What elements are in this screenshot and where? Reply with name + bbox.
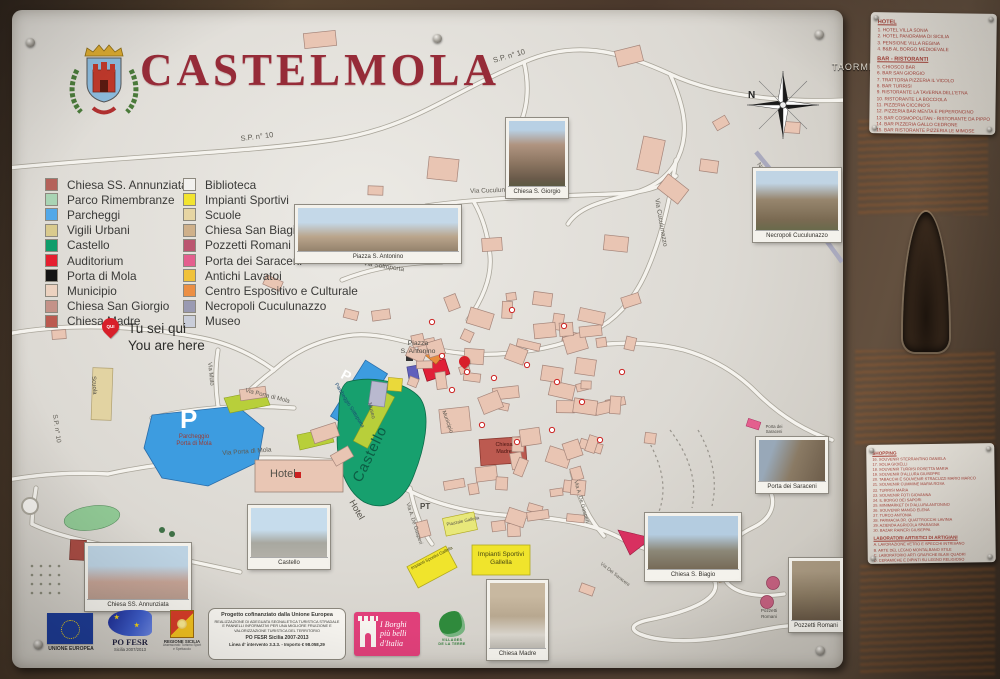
screw	[816, 646, 825, 655]
borghi-piu-belli-logo: I Borghi più belli d'Italia	[354, 612, 420, 656]
legend-item: Chiesa San Giorgio	[45, 299, 188, 314]
photo-chiesa-s-giorgio: Chiesa S. Giorgio	[506, 118, 568, 198]
legend-swatch	[183, 193, 196, 206]
legend-item-label: Parco Rimembranze	[67, 193, 175, 207]
photo-castello: Castello	[248, 505, 330, 569]
eu-label: UNIONE EUROPEA	[40, 646, 102, 652]
legend-item: Parcheggi	[45, 207, 188, 222]
area-parco	[63, 502, 122, 534]
laboratori-list: A. LAVORAZIONE VETRO E SPECCHI INTRISANO…	[874, 541, 992, 564]
castelmola-sign-photo: { "sign": { "title": "CASTELMOLA", "fram…	[0, 0, 1000, 679]
legend-item: Auditorium	[45, 253, 188, 268]
leaf-icon	[439, 611, 465, 637]
photo-caption: Chiesa SS. Annunziata	[87, 599, 189, 609]
photo-caption: Necropoli Cuculunazzo	[755, 230, 839, 240]
villages-text: VILLAGES DE LA TERRE	[432, 638, 472, 647]
po-fesr-logo: ★★ PO FESR Sicilia 2007/2013	[102, 610, 158, 658]
sign-title: CASTELMOLA	[140, 44, 500, 96]
legend-item-label: Porta dei Saraceni	[205, 254, 302, 268]
photo-chiesa-ss-annunziata: Chiesa SS. Annunziata	[85, 543, 191, 611]
compass-rose	[747, 71, 819, 139]
marker-porta-saraceni	[746, 418, 761, 430]
legend-item-label: Centro Espositivo e Culturale	[205, 284, 358, 298]
photo-chiesa-madre: Chiesa Madre	[487, 580, 548, 660]
you-are-here-pin-icon: QUI	[98, 314, 122, 338]
building-annunziata	[69, 540, 86, 561]
legend-swatch	[183, 284, 196, 297]
rust-streaks-bottom	[855, 350, 995, 445]
photo-caption: Chiesa S. Giorgio	[508, 186, 566, 196]
legend-item-label: Biblioteca	[205, 178, 256, 192]
sicilia-flag-icon	[170, 610, 194, 638]
place-label-parcheggio-mola: Parcheggio Porta di Mola	[158, 434, 230, 448]
po-fesr-icon: ★★	[108, 610, 152, 636]
tower-icon	[360, 621, 376, 647]
legend-swatch	[183, 300, 196, 313]
legend-item: Porta di Mola	[45, 268, 188, 283]
legend-swatch	[183, 254, 196, 267]
roundabout	[22, 498, 38, 514]
place-label-scuola: Scuola	[90, 376, 97, 395]
photo-pozzetti-romani: Pozzetti Romani	[789, 558, 843, 632]
legend-item-label: Municipio	[67, 284, 117, 298]
photo-caption: Castello	[250, 557, 328, 567]
hotel-marker	[295, 472, 301, 478]
eu-flag-logo	[47, 613, 93, 644]
legend-item: Parco Rimembranze	[45, 192, 188, 207]
legend-item-label: Museo	[205, 314, 240, 328]
villages-de-la-terre-logo: VILLAGES DE LA TERRE	[432, 611, 472, 661]
legend-item-label: Scuole	[205, 208, 241, 222]
photo-caption: Porta dei Saraceni	[758, 481, 826, 491]
legend-item: Castello	[45, 238, 188, 253]
place-label-pt: PT	[420, 502, 430, 511]
legend-item-label: Chiesa San Biagio	[205, 223, 302, 237]
photo-caption: Piazza S. Antonino	[297, 251, 459, 261]
screw	[34, 640, 43, 649]
legend-item-label: Pozzetti Romani	[205, 238, 291, 252]
legend-item-label: Auditorium	[67, 254, 123, 268]
legend-item: Antichi Lavatoi	[183, 268, 358, 283]
map-panel: CASTELMOLA Chiesa SS. Annunziata Parco R…	[12, 10, 843, 668]
parking-p-mola: P	[180, 404, 197, 435]
legend-swatch	[45, 178, 58, 191]
bar-list-item: 15. BAR RISTORANTE PIZZERIA LE MIMOSE	[876, 127, 990, 135]
legend-item: Centro Espositivo e Culturale	[183, 283, 358, 298]
legend-swatch	[183, 208, 196, 221]
legend-item: Vigili Urbani	[45, 223, 188, 238]
legend-item-label: Chiesa SS. Annunziata	[67, 178, 188, 192]
legend-item-label: Necropoli Cuculunazzo	[205, 299, 326, 313]
photo-chiesa-s-biagio: Chiesa S. Biagio	[645, 513, 741, 581]
compass-north-label: N	[748, 90, 755, 101]
frame-slot-cutout	[903, 212, 949, 352]
legend-item-label: Parcheggi	[67, 208, 120, 222]
photo-piazza-s-antonino: Piazza S. Antonino	[295, 205, 461, 263]
place-label-piazza-s-antonino: Piazza S. Antonino	[390, 340, 446, 356]
legend-swatch	[45, 315, 58, 328]
photo-caption: Pozzetti Romani	[791, 620, 841, 630]
legend-swatch	[183, 224, 196, 237]
screw	[815, 30, 824, 39]
legend-swatch	[45, 193, 58, 206]
legend-swatch	[45, 284, 58, 297]
pozzetto-1	[767, 577, 780, 590]
legend-item-label: Antichi Lavatoi	[205, 269, 282, 283]
legend-swatch	[45, 239, 58, 252]
you-are-here-en: You are here	[128, 337, 205, 354]
place-label-chiesa-madre: Chiesa Madre	[488, 442, 520, 455]
pozzetto-2	[761, 596, 774, 609]
photo-caption: Chiesa Madre	[489, 648, 546, 658]
legend-swatch	[45, 224, 58, 237]
place-label-pozzetti: Pozzetti Romani	[754, 608, 784, 619]
photo-necropoli: Necropoli Cuculunazzo	[753, 168, 841, 242]
legend-item: Museo	[183, 314, 358, 329]
hotel-bar-listing-panel: HOTEL 1. HOTEL VILLA SONIA2. HOTEL PANOR…	[869, 12, 997, 135]
shopping-list: 16. SOUVENIR STERRANTINO DANIELA17. SOLI…	[872, 455, 991, 533]
photo-porta-dei-saraceni: Porta dei Saraceni	[756, 437, 828, 493]
place-label-hotel: Hotel	[270, 468, 296, 480]
legend-swatch	[183, 239, 196, 252]
place-label-impianti: Impianti Sportivi Gallella	[474, 551, 528, 567]
coat-of-arms	[67, 36, 141, 122]
screw	[26, 38, 35, 47]
place-label-saraceni: Porta dei Saraceni	[760, 424, 788, 434]
regione-sicilia-logo: REGIONE SICILIA Assessorato Turismo Spor…	[162, 610, 202, 662]
you-are-here-pin-label: QUI	[102, 318, 119, 335]
map-position-pin-icon	[457, 354, 473, 370]
legend-swatch	[45, 254, 58, 267]
legend-item-label: Castello	[67, 238, 110, 252]
screw	[433, 34, 442, 43]
legend-item-label: Chiesa San Giorgio	[67, 299, 169, 313]
legend-swatch	[45, 300, 58, 313]
bar-heading: BAR - RISTORANTI	[877, 56, 991, 64]
building-giallo	[387, 377, 402, 391]
legend-swatch	[183, 269, 196, 282]
legend-item: Necropoli Cuculunazzo	[183, 299, 358, 314]
legend-swatch	[45, 208, 58, 221]
photo-caption: Chiesa S. Biagio	[647, 569, 739, 579]
legend-swatch	[45, 269, 58, 282]
eu-stars-icon	[61, 620, 80, 639]
shopping-listing-panel: SHOPPING 16. SOUVENIR STERRANTINO DANIEL…	[866, 443, 996, 564]
hotel-list: 1. HOTEL VILLA SONIA2. HOTEL PANORAMA DI…	[877, 27, 991, 54]
legend-swatch	[183, 178, 196, 191]
borghi-text: I Borghi più belli d'Italia	[380, 620, 407, 649]
project-funding-box: Progetto cofinanziato dalla Unione Europ…	[208, 608, 346, 660]
hotel-heading: HOTEL	[878, 19, 992, 27]
you-are-here-text: Tu sei qui You are here	[128, 320, 205, 354]
trails-layer	[648, 430, 714, 514]
legend-item-label: Vigili Urbani	[67, 223, 130, 237]
legend-item-label: Porta di Mola	[67, 269, 137, 283]
legend-item: Biblioteca	[183, 177, 358, 192]
legend-item: Municipio	[45, 283, 188, 298]
legend-item-label: Impianti Sportivi	[205, 193, 289, 207]
bar-list: 5. CHIOSCO BAR6. BAR SAN GIORGIO7. TRATT…	[876, 64, 991, 134]
you-are-here-it: Tu sei qui	[128, 320, 205, 337]
rust-streaks-lower	[860, 565, 995, 675]
legend-column-1: Chiesa SS. Annunziata Parco Rimembranze …	[45, 177, 188, 329]
legend-item: Chiesa SS. Annunziata	[45, 177, 188, 192]
